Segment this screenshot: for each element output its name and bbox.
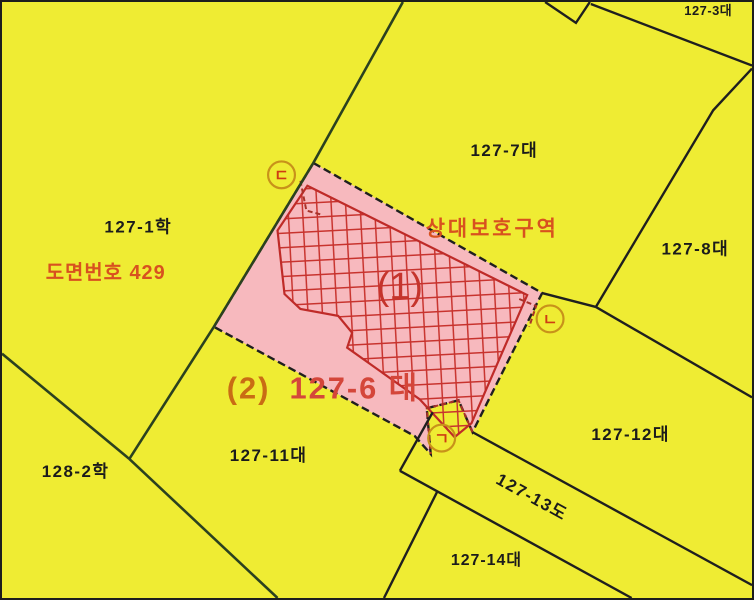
marker-nieun-letter: ㄴ [543,312,558,329]
parcel-label-127-14: 127-14대 [451,551,522,569]
subject-parcel-prefix: (2) [227,370,271,405]
drawing-number-stamp: 도면번호 429 [46,262,166,284]
parcel-label-127-11: 127-11대 [230,446,308,465]
parcel-label-127-3: 127-3대 [684,3,732,18]
parcel-label-127-12: 127-12대 [591,425,670,444]
parcel-label-127-8: 127-8대 [661,239,729,258]
marker-giyeok-letter: ㄱ [434,431,449,448]
building-number-label: (1) [377,266,423,308]
parcel-label-127-1: 127-1학 [104,217,172,236]
parcel-label-128-2: 128-2학 [42,462,110,481]
protection-zone-stamp: 상대보호구역 [426,217,559,240]
cadastral-map: ㄷ ㄴ ㄱ 127-1학 127-3대 127-7대 127-8대 127-11… [0,0,754,600]
map-canvas: ㄷ ㄴ ㄱ 127-1학 127-3대 127-7대 127-8대 127-11… [2,2,752,598]
subject-parcel-lot-number: 127-6 대 [289,370,419,405]
marker-digeut-letter: ㄷ [274,168,289,185]
parcel-label-127-7: 127-7대 [470,141,538,160]
